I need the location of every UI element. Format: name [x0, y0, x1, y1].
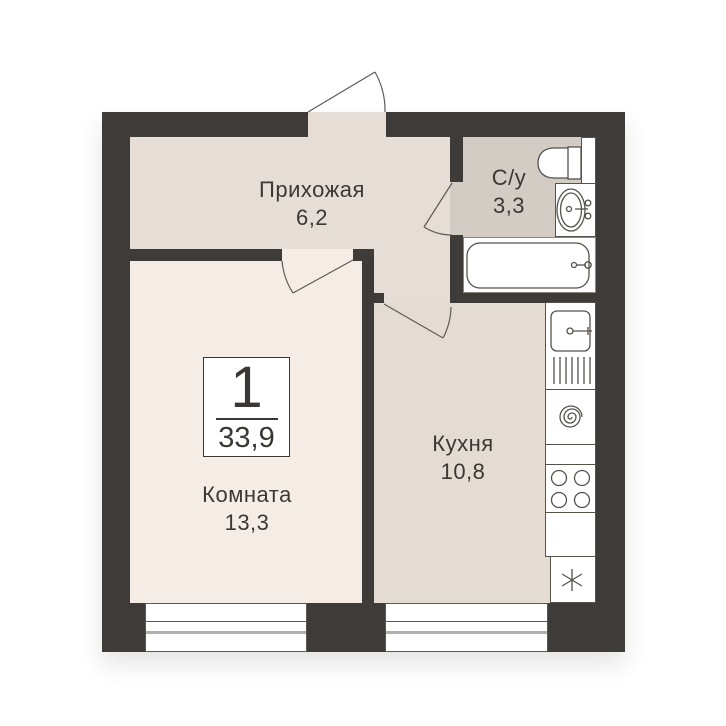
unit-badge: 1 33,9	[203, 357, 290, 457]
fridge-cabinet	[550, 556, 596, 603]
bathtub-zone	[463, 237, 596, 293]
wall-left	[102, 112, 130, 652]
entrance-door-swing	[308, 72, 385, 112]
window-kitchen-pane-line	[386, 621, 547, 622]
window-kitchen-sill-line	[386, 631, 547, 634]
wall-bathroom-lower	[450, 235, 463, 293]
hallway-corridor-floor	[374, 249, 450, 303]
hallway-label: Прихожая	[232, 177, 392, 202]
window-living-pane-line	[146, 621, 306, 622]
bathroom-area: 3,3	[459, 193, 559, 218]
living-label-block: Комната 13,3	[167, 482, 327, 535]
stove-cabinet	[545, 464, 596, 513]
living-label: Комната	[167, 482, 327, 507]
bathroom-sink-box	[555, 183, 596, 237]
badge-divider	[216, 418, 278, 420]
hallway-entry-strip	[308, 112, 386, 138]
floor-plan-canvas: 1 33,9 Прихожая 6,2 С/у 3,3 Комната 13,3…	[0, 0, 726, 726]
wall-bottom-left	[102, 603, 145, 652]
kitchen-sink-cabinet	[545, 302, 596, 390]
window-kitchen	[385, 603, 548, 652]
wall-bottom-middle	[307, 603, 385, 652]
living-area: 13,3	[167, 510, 327, 535]
badge-total-area: 33,9	[218, 422, 274, 454]
hallway-label-block: Прихожая 6,2	[232, 177, 392, 230]
spiral-appliance-cabinet	[545, 389, 596, 445]
kitchen-label: Кухня	[383, 431, 543, 456]
wall-hall-living-left	[130, 249, 282, 261]
counter-small-cabinet	[545, 444, 596, 465]
window-living-sill-line	[146, 631, 306, 634]
kitchen-area: 10,8	[383, 459, 543, 484]
kitchen-label-block: Кухня 10,8	[383, 431, 543, 484]
duct-box	[581, 137, 596, 184]
wall-top-left	[102, 112, 308, 137]
wall-right	[596, 112, 625, 652]
window-living	[145, 603, 307, 652]
bathroom-label: С/у	[459, 165, 559, 190]
badge-rooms-count: 1	[230, 361, 262, 415]
wall-bottom-right	[548, 603, 625, 652]
wall-kitchen-door-stub	[362, 293, 384, 303]
hallway-area: 6,2	[232, 205, 392, 230]
bathroom-label-block: С/у 3,3	[459, 165, 559, 218]
counter-empty-cabinet	[545, 512, 596, 557]
wall-top-right	[386, 112, 625, 137]
